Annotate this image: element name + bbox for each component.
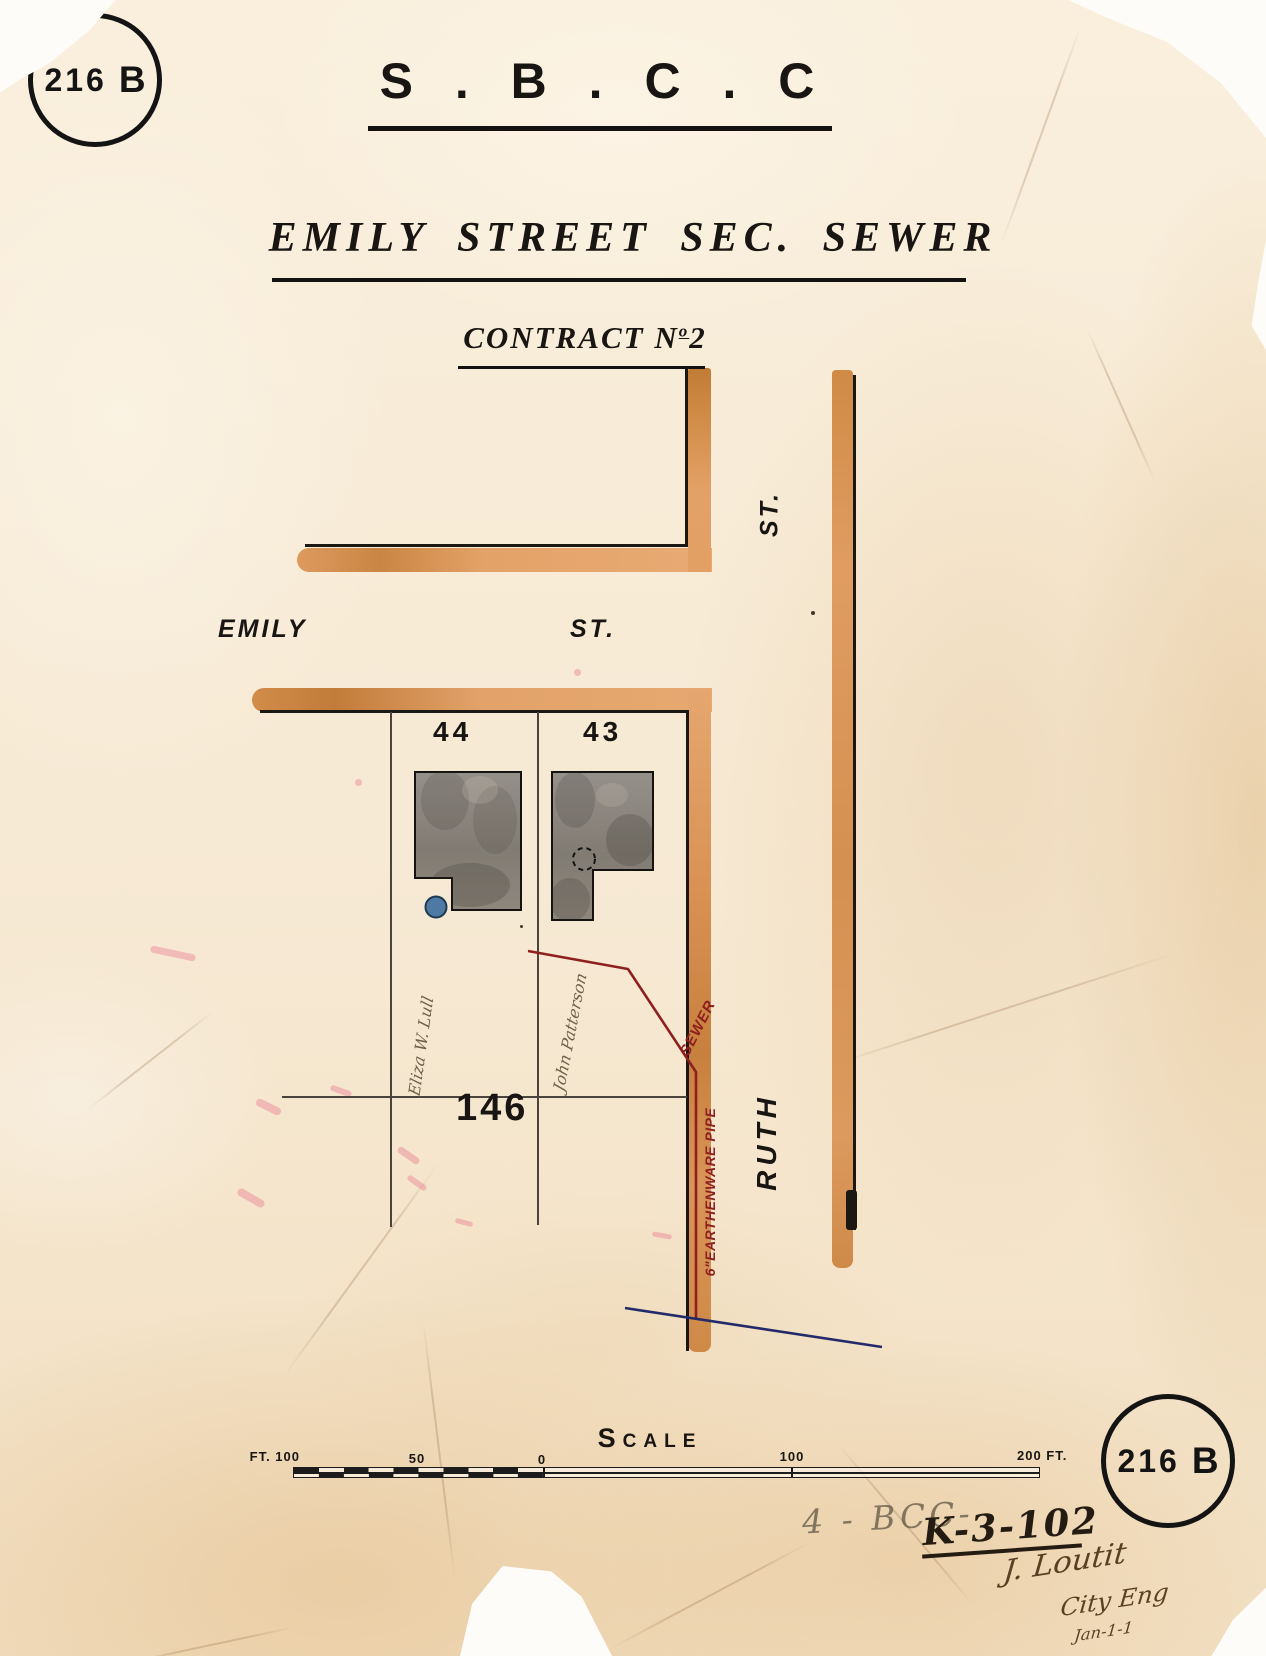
street-label-emily: EMILY: [218, 615, 308, 644]
scale-bar-100-divider: [791, 1468, 793, 1477]
street-label-emily-st: ST.: [570, 615, 616, 644]
stamp-number: 216: [1117, 1443, 1179, 1480]
scale-heading-initial: S: [598, 1423, 623, 1453]
org-title: S . B . C . C: [340, 52, 860, 110]
drawing-title: EMILY STREET SEC. SEWER: [238, 214, 1028, 262]
contract-number: 2: [689, 320, 707, 355]
scale-bar-midline: [294, 1472, 1039, 1474]
scale-tick-left: FT. 100: [228, 1449, 300, 1464]
stamp-letter: B: [119, 59, 146, 101]
scale-tick-50: 50: [403, 1451, 431, 1466]
scale-heading-rest: CALE: [623, 1431, 703, 1452]
drawing-sheet: S . B . C . C EMILY STREET SEC. SEWER CO…: [0, 0, 1266, 1656]
scale-heading: SCALE: [560, 1423, 740, 1454]
contract-subtitle: CONTRACT No2: [440, 320, 730, 356]
ink-speck: [520, 925, 523, 928]
sheet-stamp-bottom-right: 216 B: [1101, 1394, 1235, 1528]
stamp-letter: B: [1192, 1440, 1219, 1482]
street-label-cross-st: ST.: [756, 491, 785, 537]
scale-bar: [293, 1467, 1040, 1478]
survey-blue-line: [625, 1308, 882, 1347]
sewer-line: [528, 951, 696, 1318]
lot-number-44: 44: [433, 716, 472, 748]
contract-underline: [458, 366, 705, 369]
contract-prefix: CONTRACT N: [463, 320, 679, 355]
lot-number-43: 43: [583, 716, 622, 748]
scale-tick-100: 100: [771, 1449, 813, 1464]
drawing-title-underline: [272, 278, 966, 282]
street-label-ruth: RUTH: [751, 1093, 783, 1191]
org-title-underline: [368, 126, 832, 131]
scale-tick-right: 200 FT.: [1017, 1448, 1067, 1463]
scale-tick-0: 0: [533, 1452, 551, 1467]
contract-ordinal: o: [679, 322, 690, 341]
scale-bar-zero-divider: [543, 1468, 545, 1477]
pipe-label: 6"EARTHENWARE PIPE: [702, 1108, 718, 1277]
lot-number-146: 146: [456, 1087, 528, 1130]
well-circle: [426, 897, 447, 918]
stamp-number: 216: [44, 62, 106, 99]
ink-speck: [811, 611, 815, 615]
